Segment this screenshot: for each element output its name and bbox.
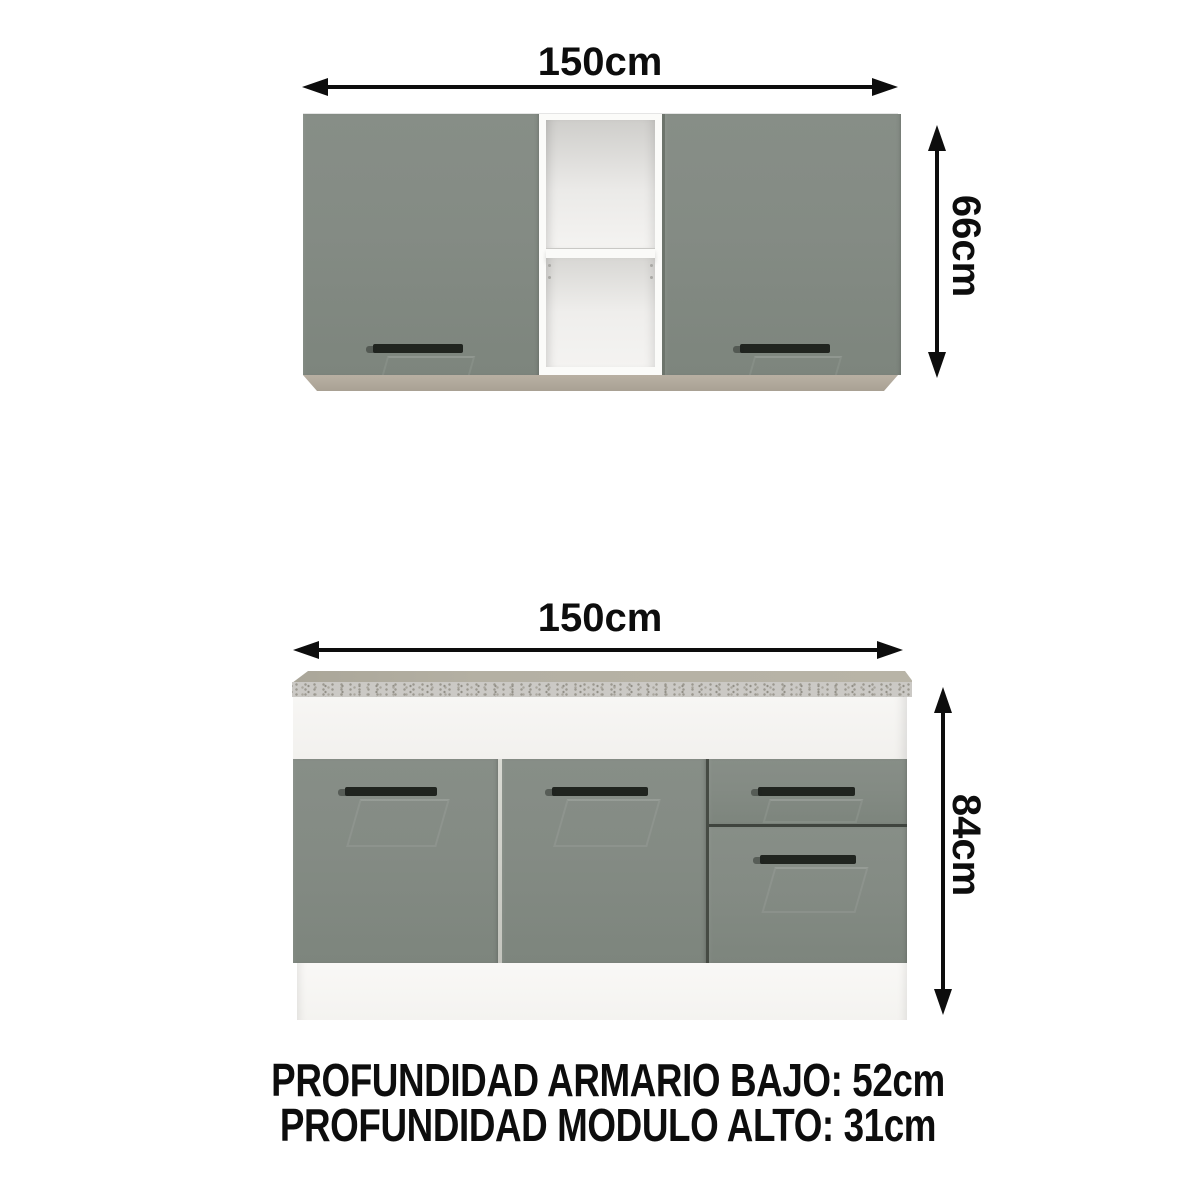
drawer-reflection <box>761 867 868 913</box>
upper-height-arrow-line <box>935 148 939 356</box>
lower-height-label: 84cm <box>946 765 986 925</box>
upper-right-door <box>662 114 901 375</box>
plinth <box>297 963 907 1020</box>
lower-left-door-handle <box>345 787 437 796</box>
upper-width-arrow-line <box>316 85 884 89</box>
lower-middle-door <box>502 759 706 963</box>
upper-left-door-handle <box>373 344 463 353</box>
shelf-pin <box>548 276 551 279</box>
depth-notes: PROFUNDIDAD ARMARIO BAJO: 52cm PROFUNDID… <box>8 1058 1200 1148</box>
shelf-pin <box>548 264 551 267</box>
lower-cabinet-top-band <box>293 697 907 759</box>
arrowhead-down-icon <box>934 989 952 1015</box>
arrowhead-right-icon <box>872 78 898 96</box>
door-reflection <box>346 799 450 847</box>
upper-height-label: 66cm <box>946 166 986 326</box>
shelf-compartment-bottom <box>546 258 655 367</box>
door-reflection <box>553 799 661 847</box>
depth-note-base: PROFUNDIDAD ARMARIO BAJO: 52cm <box>128 1058 1088 1103</box>
lower-width-arrow-line <box>307 648 893 652</box>
drawer-column <box>709 759 907 963</box>
bottom-drawer <box>709 827 907 963</box>
shelf-pin <box>650 276 653 279</box>
lower-cabinet-front <box>293 759 907 963</box>
depth-note-upper: PROFUNDIDAD MODULO ALTO: 31cm <box>128 1103 1088 1148</box>
upper-cabinet-base-strip <box>303 375 898 391</box>
countertop <box>292 671 912 697</box>
upper-cabinet <box>303 113 898 391</box>
lower-left-door <box>293 759 498 963</box>
bottom-drawer-handle <box>760 855 856 864</box>
arrowhead-right-icon <box>877 641 903 659</box>
upper-right-door-handle <box>740 344 830 353</box>
drawer-reflection <box>763 799 864 823</box>
shelf-compartment-top <box>546 120 655 248</box>
arrowhead-down-icon <box>928 352 946 378</box>
lower-middle-door-handle <box>552 787 648 796</box>
kitchen-cabinet-dimension-diagram: 150cm 66cm 150cm <box>0 0 1200 1200</box>
upper-left-door <box>303 114 539 375</box>
top-drawer <box>709 759 907 824</box>
lower-width-label: 150cm <box>450 598 750 638</box>
upper-open-shelf-unit <box>539 114 662 375</box>
shelf-pin <box>650 264 653 267</box>
top-drawer-handle <box>758 787 855 796</box>
upper-width-label: 150cm <box>450 42 750 82</box>
countertop-front-edge <box>292 682 912 697</box>
